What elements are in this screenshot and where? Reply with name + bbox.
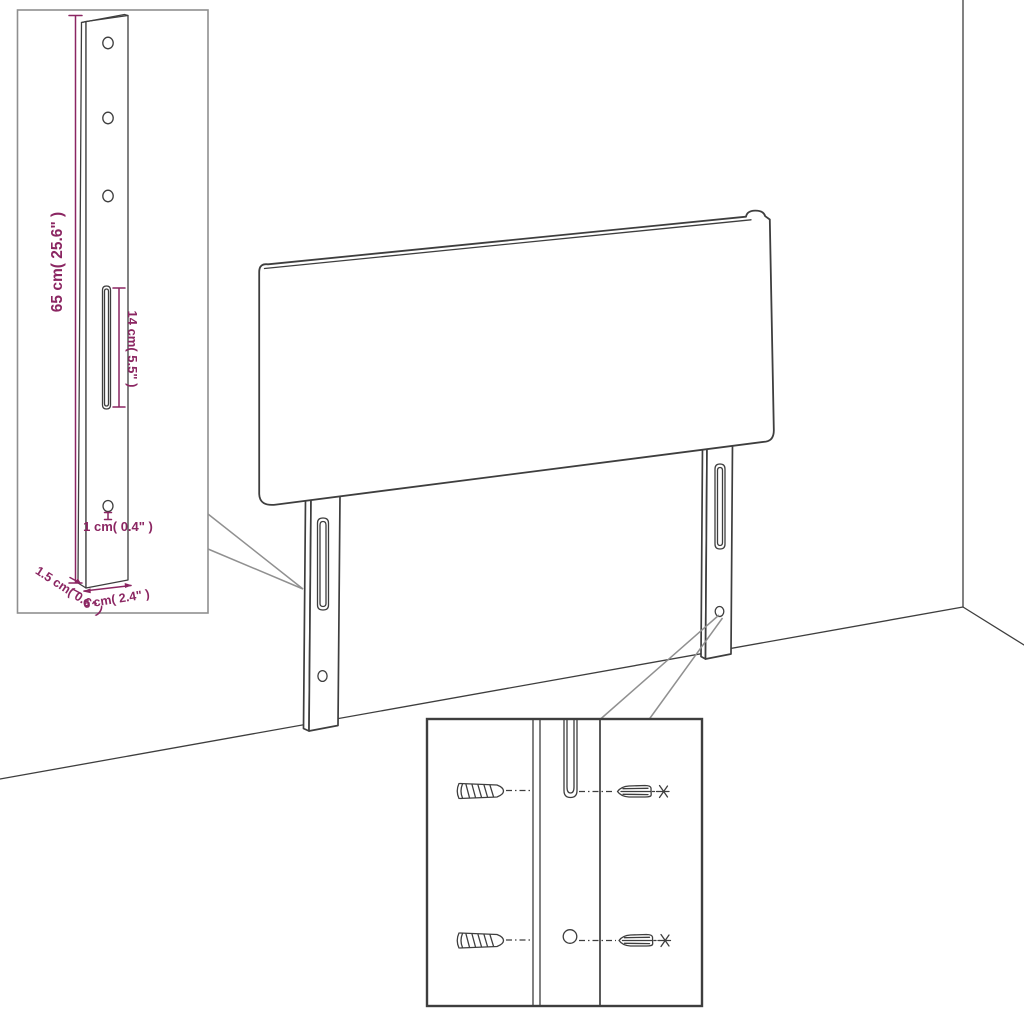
- floor-line-right: [963, 607, 1024, 645]
- right-leg-front-face: [706, 444, 733, 659]
- hole-diameter-label: 1 cm( 0.4" ): [83, 519, 153, 534]
- left-leg-front-face: [309, 496, 340, 731]
- left-leg: [304, 496, 341, 731]
- slot-length-label: 14 cm( 5.5" ): [125, 311, 140, 388]
- right-inset-callout-line-right: [649, 618, 723, 720]
- left-inset-callout-line-lower: [208, 549, 303, 589]
- post-detail-inset: 65 cm( 25.6" ) 14 cm( 5.5" ) 1 cm( 0.4" …: [18, 10, 209, 618]
- post-drawing: [78, 15, 128, 589]
- post-height-label: 65 cm( 25.6" ): [49, 212, 66, 312]
- callout-lines: [208, 514, 723, 720]
- left-inset-callout-line-upper: [208, 514, 303, 589]
- headboard-panel: [259, 211, 774, 505]
- post-front-face: [86, 16, 128, 589]
- headboard-assembly-diagram: 65 cm( 25.6" ) 14 cm( 5.5" ) 1 cm( 0.4" …: [0, 0, 1024, 1024]
- headboard: [259, 211, 774, 505]
- screw-detail-inset: [427, 719, 702, 1006]
- assembly-diagram-page: 65 cm( 25.6" ) 14 cm( 5.5" ) 1 cm( 0.4" …: [0, 0, 1024, 1024]
